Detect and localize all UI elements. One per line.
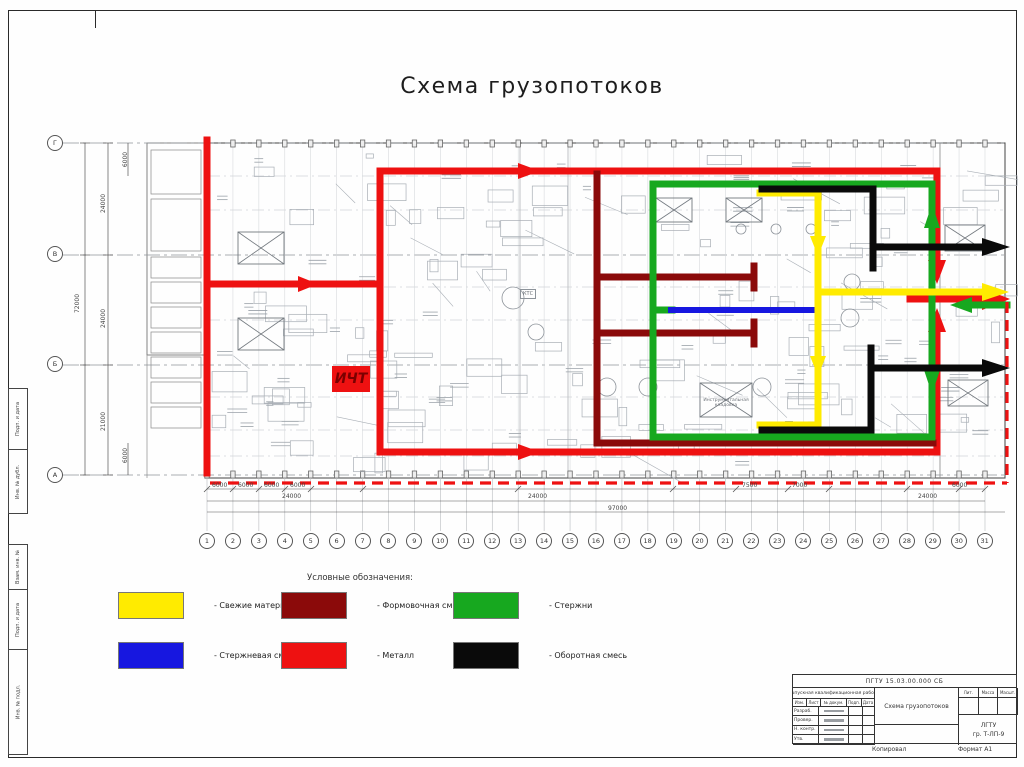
- dim-bottom-1: 6000: [212, 482, 227, 489]
- date-cell: [863, 707, 875, 715]
- drawing-sheet: Схема грузопотоков: [0, 0, 1024, 767]
- frame-stamp-cell: Подп. и дата: [8, 590, 28, 650]
- title-block-right: Лит. Масса Масшт. ЛГТУ гр. Т-ЛП-9: [959, 688, 1018, 745]
- sign-cell: [849, 726, 863, 734]
- icht-furnace-label: ИЧТ: [332, 366, 370, 392]
- column-axis-bubble: 7: [355, 533, 371, 549]
- header-cell: Лист: [807, 699, 821, 706]
- frame-stamp-cell: Инв. № дубл.: [8, 450, 28, 514]
- row-axis-bubble: Б: [47, 356, 63, 372]
- frame-stamp-cell: Инв. № подл.: [8, 650, 28, 755]
- name-cell: [819, 716, 849, 724]
- name-cell: [819, 726, 849, 734]
- dim-left-seg1: 24000: [100, 194, 107, 213]
- dim-bottom-3: 6000: [264, 482, 279, 489]
- room-label-ktc: КТС: [520, 289, 536, 299]
- dim-bottom-5: 24000: [282, 493, 301, 500]
- row-axis-bubble: Г: [47, 135, 63, 151]
- legend-title: Условные обозначения:: [110, 573, 610, 583]
- column-axis-bubble: 18: [640, 533, 656, 549]
- title-block-drawing-title: Схема грузопотоков: [875, 688, 958, 725]
- legend-color-swatch: [118, 592, 184, 619]
- header-cell: № докум.: [821, 699, 847, 706]
- work-type: Выпускная квалификационная работа: [793, 688, 874, 699]
- title-block-signature-rows: Разраб. Провер. Н. контр. Утв.: [793, 707, 874, 745]
- title-block-header-row: Изм.Лист№ докум.Подп.Дата: [793, 699, 874, 707]
- column-axis-bubble: 28: [899, 533, 915, 549]
- legend-item-label: - Оборотная смесь: [549, 651, 627, 660]
- signature-row: Н. контр.: [793, 726, 874, 735]
- signature-row: Разраб.: [793, 707, 874, 716]
- column-axis-bubble: 19: [666, 533, 682, 549]
- column-axis-bubble: 27: [873, 533, 889, 549]
- row-axis-bubbles: ГВБА: [47, 135, 63, 483]
- row-axis-bubble: В: [47, 246, 63, 262]
- sign-cell: [849, 707, 863, 715]
- column-axis-bubble: 30: [951, 533, 967, 549]
- column-axis-bubble: 3: [251, 533, 267, 549]
- frame-stamp-cell: Подп. и дата: [8, 388, 28, 450]
- date-cell: [863, 726, 875, 734]
- signature-row: Утв.: [793, 735, 874, 744]
- dim-left-small-bottom: 6000: [122, 448, 129, 463]
- column-axis-bubble: 9: [406, 533, 422, 549]
- room-label-tool-room: Инструментальная кладовка: [676, 398, 776, 408]
- column-axis-bubble: 17: [614, 533, 630, 549]
- column-axis-bubble: 23: [769, 533, 785, 549]
- legend-color-swatch: [281, 592, 347, 619]
- dim-left-seg3: 21000: [100, 412, 107, 431]
- dim-bottom-total: 97000: [608, 505, 627, 512]
- organization-name: ЛГТУ: [981, 721, 997, 730]
- role-cell: Н. контр.: [793, 726, 819, 734]
- name-cell: [819, 707, 849, 715]
- legend-color-swatch: [453, 642, 519, 669]
- row-axis-bubble: А: [47, 467, 63, 483]
- column-axis-bubble: 1: [199, 533, 215, 549]
- column-axis-bubbles: 1234567891011121314151617181920212223242…: [199, 533, 993, 549]
- legend-item: - Стержни: [453, 592, 668, 619]
- column-axis-bubble: 24: [795, 533, 811, 549]
- legend-item: - Формовочная смесь: [281, 592, 453, 619]
- drawing-title: Схема грузопотоков: [312, 74, 752, 99]
- column-axis-bubble: 29: [925, 533, 941, 549]
- dim-bottom-4: 6000: [290, 482, 305, 489]
- column-axis-bubble: 21: [717, 533, 733, 549]
- lit-mass-scale-header: Лит. Масса Масшт.: [959, 688, 1018, 698]
- dim-left-seg2: 24000: [100, 309, 107, 328]
- signature-row: Провер.: [793, 716, 874, 725]
- role-cell: Разраб.: [793, 707, 819, 715]
- column-axis-bubble: 14: [536, 533, 552, 549]
- frame-stamp-cells: Подп. и дата Инв. № дубл. Взам. инв. № П…: [8, 388, 28, 755]
- scale-label: Масшт.: [998, 688, 1018, 697]
- column-axis-bubble: 22: [743, 533, 759, 549]
- dim-bottom-8: 7000: [792, 482, 807, 489]
- organization-cell: ЛГТУ гр. Т-ЛП-9: [959, 715, 1018, 745]
- legend-color-swatch: [281, 642, 347, 669]
- column-axis-bubble: 11: [458, 533, 474, 549]
- header-cell: Подп.: [847, 699, 862, 706]
- column-axis-bubble: 5: [303, 533, 319, 549]
- column-axis-bubble: 25: [821, 533, 837, 549]
- dim-bottom-2: 6000: [238, 482, 253, 489]
- legend-item: - Оборотная смесь: [453, 642, 668, 669]
- group-number: гр. Т-ЛП-9: [973, 730, 1005, 739]
- column-axis-bubble: 6: [329, 533, 345, 549]
- title-block: ПГТУ 15.03.00.000 СБ Выпускная квалифика…: [792, 674, 1017, 744]
- name-cell: [819, 735, 849, 743]
- legend: - Свежие материалы - Формовочная смесь -…: [118, 592, 668, 669]
- legend-item: - Стержневая смесь: [118, 642, 281, 669]
- dim-left-total: 72000: [74, 294, 81, 313]
- sign-cell: [849, 716, 863, 724]
- title-block-left: Выпускная квалификационная работа Изм.Ли…: [793, 688, 875, 745]
- frame-stamp-cell: Взам. инв. №: [8, 544, 28, 590]
- column-axis-bubble: 13: [510, 533, 526, 549]
- frame-divider: [95, 10, 96, 28]
- title-block-center: Схема грузопотоков: [875, 688, 959, 745]
- column-axis-bubble: 12: [484, 533, 500, 549]
- date-cell: [863, 735, 875, 743]
- dim-bottom-6: 24000: [528, 493, 547, 500]
- column-axis-bubble: 4: [277, 533, 293, 549]
- mass-label: Масса: [979, 688, 999, 697]
- lit-mass-scale-values: [959, 698, 1018, 715]
- dim-bottom-10: 6000: [952, 482, 967, 489]
- document-number: ПГТУ 15.03.00.000 СБ: [793, 675, 1016, 688]
- dim-left-small-top: 6000: [122, 152, 129, 167]
- legend-item-label: - Стержни: [549, 601, 592, 610]
- column-axis-bubble: 10: [432, 533, 448, 549]
- format-label: Формат А1: [958, 746, 992, 753]
- sign-cell: [849, 735, 863, 743]
- column-axis-bubble: 15: [562, 533, 578, 549]
- date-cell: [863, 716, 875, 724]
- column-axis-bubble: 16: [588, 533, 604, 549]
- header-cell: Изм.: [793, 699, 807, 706]
- legend-color-swatch: [118, 642, 184, 669]
- dim-bottom-7: 7500: [742, 482, 757, 489]
- legend-item: - Свежие материалы: [118, 592, 281, 619]
- copied-label: Копировал: [872, 746, 906, 753]
- column-axis-bubble: 26: [847, 533, 863, 549]
- column-axis-bubble: 20: [692, 533, 708, 549]
- header-cell: Дата: [862, 699, 875, 706]
- column-axis-bubble: 31: [977, 533, 993, 549]
- lit-label: Лит.: [959, 688, 979, 697]
- column-axis-bubble: 2: [225, 533, 241, 549]
- legend-color-swatch: [453, 592, 519, 619]
- legend-item: - Металл: [281, 642, 453, 669]
- column-axis-bubble: 8: [380, 533, 396, 549]
- role-cell: Утв.: [793, 735, 819, 743]
- dim-bottom-9: 24000: [918, 493, 937, 500]
- role-cell: Провер.: [793, 716, 819, 724]
- legend-item-label: - Металл: [377, 651, 414, 660]
